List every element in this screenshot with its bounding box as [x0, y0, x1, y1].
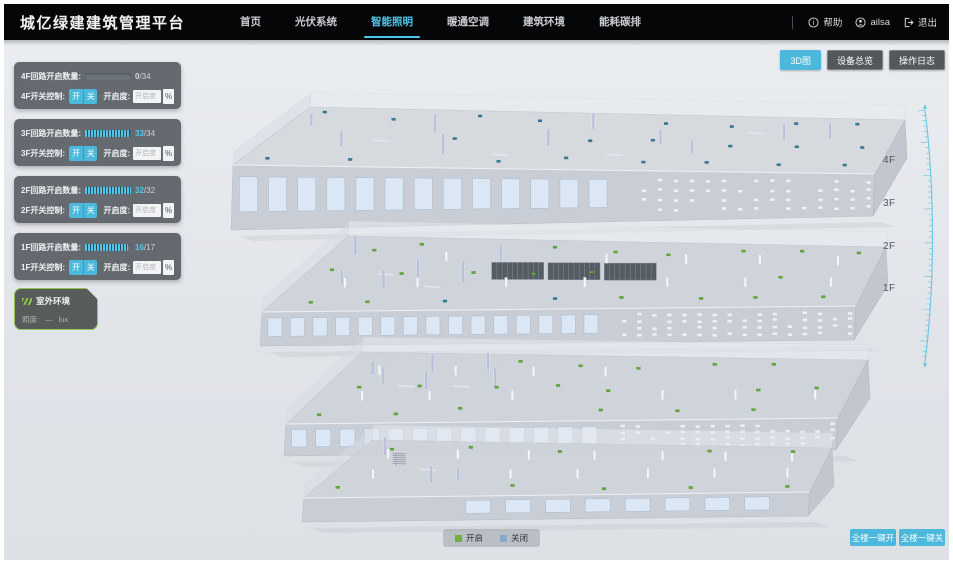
circuit-count-row: 2F回路开启数量:32/32	[21, 182, 174, 198]
switch-on-button[interactable]: 开	[69, 260, 83, 275]
outdoor-env-title-row: 室外环境	[22, 295, 90, 307]
percent-button[interactable]: %	[163, 89, 174, 104]
circuit-count-numerator: 33	[135, 129, 144, 138]
switch-off-button[interactable]: 关	[83, 260, 97, 275]
nav-item-4[interactable]: 暖通空调	[430, 4, 506, 40]
circuit-progress-fill	[85, 130, 130, 137]
floor-scale-label-4f: 4F	[883, 155, 896, 166]
circuit-count-value: 0/34	[135, 72, 151, 81]
header-right: i 帮助 ailsa 退出	[792, 15, 937, 29]
help-button[interactable]: i 帮助	[808, 15, 842, 29]
switch-control-row: 3F开关控制:开关开启度:%	[21, 145, 174, 161]
floor-panel-2f: 2F回路开启数量:32/322F开关控制:开关开启度:%	[14, 176, 181, 223]
logout-icon	[903, 17, 914, 28]
circuit-progress-bar	[85, 244, 131, 251]
nav-item-1[interactable]: 首页	[223, 4, 278, 40]
floor-panel-1f: 1F回路开启数量:16/171F开关控制:开关开启度:%	[14, 233, 181, 280]
circuit-progress-fill	[85, 244, 128, 251]
view-toolbar: 3D图设备总览操作日志	[780, 50, 945, 70]
percent-button[interactable]: %	[163, 203, 174, 218]
legend-label-2: 关闭	[511, 532, 528, 544]
switch-on-button[interactable]: 开	[69, 89, 83, 104]
legend-item-2: 关闭	[500, 532, 528, 544]
user-name: ailsa	[870, 17, 890, 28]
outdoor-env-panel: 室外环境 照度: — lux	[14, 288, 98, 330]
circuit-count-denominator: /34	[139, 72, 150, 81]
circuit-count-numerator: 32	[135, 186, 144, 195]
circuit-count-label: 4F回路开启数量:	[21, 71, 81, 82]
circuit-count-denominator: /34	[144, 129, 155, 138]
app-title: 城亿绿建建筑管理平台	[20, 12, 185, 33]
logout-button[interactable]: 退出	[903, 15, 937, 29]
illuminance-label: 照度:	[22, 314, 39, 325]
openness-input[interactable]	[133, 261, 161, 274]
switch-off-button[interactable]: 关	[83, 89, 97, 104]
circuit-progress-fill	[85, 187, 131, 194]
floor-panel-3f: 3F回路开启数量:33/343F开关控制:开关开启度:%	[14, 119, 181, 166]
floor-scale-label-2f: 2F	[883, 241, 896, 252]
legend-item-1: 开启	[455, 532, 483, 544]
switch-control-row: 2F开关控制:开关开启度:%	[21, 202, 174, 218]
openness-input[interactable]	[133, 90, 161, 103]
on-off-group: 开关	[69, 146, 97, 161]
circuit-count-denominator: /17	[144, 243, 155, 252]
outdoor-env-metric: 照度: — lux	[22, 314, 90, 325]
illuminance-value: —	[45, 315, 53, 324]
circuit-progress-bar	[85, 130, 131, 137]
percent-button[interactable]: %	[163, 146, 174, 161]
openness-label: 开启度:	[103, 205, 130, 216]
switch-off-button[interactable]: 关	[83, 203, 97, 218]
switch-control-label: 4F开关控制:	[21, 91, 65, 102]
on-off-group: 开关	[69, 89, 97, 104]
circuit-count-denominator: /32	[144, 186, 155, 195]
switch-control-label: 2F开关控制:	[21, 205, 65, 216]
legend-swatch-1	[455, 535, 462, 542]
switch-control-row: 4F开关控制:开关开启度:%	[21, 88, 174, 104]
status-legend: 开启关闭	[443, 529, 540, 547]
circuit-count-value: 33/34	[135, 129, 155, 138]
bulk-button-2[interactable]: 全楼一键关	[899, 529, 945, 546]
openness-label: 开启度:	[103, 262, 130, 273]
switch-on-button[interactable]: 开	[69, 203, 83, 218]
on-off-group: 开关	[69, 260, 97, 275]
nav-item-5[interactable]: 建筑环境	[506, 4, 582, 40]
legend-label-1: 开启	[466, 532, 483, 544]
openness-input[interactable]	[133, 147, 161, 160]
help-icon: i	[808, 17, 819, 28]
circuit-count-numerator: 16	[135, 243, 144, 252]
toolbar-button-1[interactable]: 3D图	[780, 50, 821, 70]
floor-scale-label-3f: 3F	[883, 198, 896, 209]
floor-scale-label-1f: 1F	[883, 283, 896, 294]
circuit-progress-bar	[85, 73, 131, 80]
on-off-group: 开关	[69, 203, 97, 218]
circuit-count-label: 1F回路开启数量:	[21, 242, 81, 253]
nav-item-6[interactable]: 能耗碳排	[582, 4, 658, 40]
building-3d-view	[4, 40, 949, 560]
nav-item-2[interactable]: 光伏系统	[278, 4, 354, 40]
openness-label: 开启度:	[103, 91, 130, 102]
circuit-progress-bar	[85, 187, 131, 194]
user-menu[interactable]: ailsa	[855, 17, 890, 28]
circuit-count-value: 32/32	[135, 186, 155, 195]
switch-control-label: 1F开关控制:	[21, 262, 65, 273]
logout-label: 退出	[918, 15, 937, 29]
switch-off-button[interactable]: 关	[83, 146, 97, 161]
main-view: 3D图设备总览操作日志 4F回路开启数量:0/344F开关控制:开关开启度:%3…	[4, 40, 949, 560]
circuit-count-label: 2F回路开启数量:	[21, 185, 81, 196]
legend-swatch-2	[500, 535, 507, 542]
switch-on-button[interactable]: 开	[69, 146, 83, 161]
app-window: 城亿绿建建筑管理平台 首页光伏系统智能照明暖通空调建筑环境能耗碳排 i 帮助 a…	[4, 4, 949, 560]
percent-button[interactable]: %	[163, 260, 174, 275]
top-header: 城亿绿建建筑管理平台 首页光伏系统智能照明暖通空调建筑环境能耗碳排 i 帮助 a…	[4, 4, 949, 40]
circuit-count-label: 3F回路开启数量:	[21, 128, 81, 139]
floor-panel-4f: 4F回路开启数量:0/344F开关控制:开关开启度:%	[14, 62, 181, 109]
circuit-count-value: 16/17	[135, 243, 155, 252]
switch-control-label: 3F开关控制:	[21, 148, 65, 159]
nav-item-3[interactable]: 智能照明	[354, 4, 430, 40]
help-label: 帮助	[823, 15, 842, 29]
openness-input[interactable]	[133, 204, 161, 217]
user-icon	[855, 17, 866, 28]
illuminance-unit: lux	[59, 315, 69, 324]
circuit-count-row: 3F回路开启数量:33/34	[21, 125, 174, 141]
switch-control-row: 1F开关控制:开关开启度:%	[21, 259, 174, 275]
env-stripes-icon	[22, 298, 32, 305]
main-nav: 首页光伏系统智能照明暖通空调建筑环境能耗碳排	[223, 4, 658, 40]
svg-text:i: i	[813, 19, 815, 26]
bulk-button-1[interactable]: 全楼一键开	[850, 529, 896, 546]
bulk-control-buttons: 全楼一键开全楼一键关	[850, 529, 945, 546]
circuit-count-row: 1F回路开启数量:16/17	[21, 239, 174, 255]
circuit-count-row: 4F回路开启数量:0/34	[21, 68, 174, 84]
openness-label: 开启度:	[103, 148, 130, 159]
toolbar-button-3[interactable]: 操作日志	[889, 50, 945, 70]
toolbar-button-2[interactable]: 设备总览	[827, 50, 883, 70]
outdoor-env-title: 室外环境	[36, 295, 70, 307]
header-divider	[792, 16, 793, 29]
